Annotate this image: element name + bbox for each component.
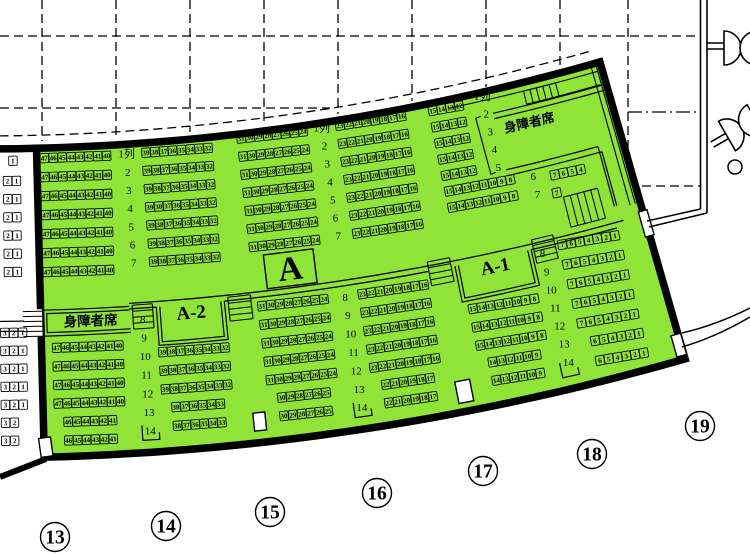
svg-text:47: 47 <box>55 400 63 408</box>
svg-text:25: 25 <box>299 201 307 210</box>
svg-text:3: 3 <box>488 126 494 138</box>
svg-text:26: 26 <box>283 148 291 157</box>
svg-text:40: 40 <box>117 398 125 406</box>
svg-text:36: 36 <box>169 147 177 156</box>
svg-text:26: 26 <box>286 166 294 175</box>
svg-text:29: 29 <box>259 169 267 178</box>
svg-text:31: 31 <box>262 339 270 348</box>
svg-text:26: 26 <box>307 334 315 343</box>
svg-text:47: 47 <box>41 173 49 181</box>
svg-text:45: 45 <box>71 343 79 351</box>
svg-text:26: 26 <box>288 184 296 193</box>
svg-text:40: 40 <box>106 247 114 255</box>
svg-text:2: 2 <box>13 419 17 427</box>
svg-text:35: 35 <box>179 164 187 173</box>
svg-text:2: 2 <box>484 109 490 121</box>
svg-text:37: 37 <box>166 238 174 247</box>
svg-text:34: 34 <box>193 236 201 245</box>
svg-text:37: 37 <box>183 421 191 430</box>
svg-text:9: 9 <box>544 266 550 278</box>
svg-text:33: 33 <box>212 344 220 353</box>
svg-text:40: 40 <box>103 152 111 160</box>
svg-text:26: 26 <box>304 316 312 325</box>
svg-text:26: 26 <box>292 220 300 229</box>
svg-text:41: 41 <box>109 417 117 425</box>
svg-text:40: 40 <box>115 342 123 350</box>
svg-text:41: 41 <box>110 435 118 443</box>
svg-text:37: 37 <box>161 166 169 175</box>
svg-text:36: 36 <box>170 165 178 174</box>
svg-text:39: 39 <box>150 258 158 267</box>
svg-text:35: 35 <box>195 346 203 355</box>
svg-text:31: 31 <box>248 225 256 234</box>
svg-text:28: 28 <box>272 204 280 213</box>
svg-text:33: 33 <box>203 254 211 263</box>
svg-text:30: 30 <box>254 206 262 215</box>
svg-text:34: 34 <box>203 345 211 354</box>
svg-text:46: 46 <box>51 192 59 200</box>
svg-text:38: 38 <box>172 403 180 412</box>
svg-text:26: 26 <box>311 371 319 380</box>
svg-text:42: 42 <box>86 191 94 199</box>
svg-text:12: 12 <box>142 388 153 400</box>
svg-text:24: 24 <box>327 351 335 360</box>
svg-text:10: 10 <box>140 351 152 363</box>
svg-text:31: 31 <box>260 321 268 330</box>
svg-text:A-2: A-2 <box>175 302 206 325</box>
svg-text:46: 46 <box>51 211 59 219</box>
svg-text:38: 38 <box>169 366 177 375</box>
svg-text:27: 27 <box>300 354 308 363</box>
svg-text:43: 43 <box>77 191 85 199</box>
svg-text:11: 11 <box>141 370 152 382</box>
svg-text:41: 41 <box>95 171 103 179</box>
svg-text:41: 41 <box>94 152 102 160</box>
svg-text:24: 24 <box>322 314 330 323</box>
svg-text:42: 42 <box>87 210 95 218</box>
svg-text:25: 25 <box>292 147 300 156</box>
svg-text:44: 44 <box>81 399 89 407</box>
svg-text:44: 44 <box>69 210 77 218</box>
svg-text:40: 40 <box>105 209 113 217</box>
svg-text:A: A <box>276 249 305 289</box>
svg-text:3: 3 <box>4 401 8 409</box>
svg-text:28: 28 <box>296 392 304 401</box>
svg-text:28: 28 <box>291 355 299 364</box>
svg-text:25: 25 <box>313 315 321 324</box>
svg-text:30: 30 <box>273 357 281 366</box>
svg-text:26: 26 <box>294 238 302 247</box>
svg-text:11: 11 <box>348 347 359 359</box>
svg-text:38: 38 <box>155 203 163 212</box>
svg-text:28: 28 <box>264 131 272 140</box>
svg-text:29: 29 <box>287 393 295 402</box>
svg-text:29: 29 <box>261 187 269 196</box>
svg-text:27: 27 <box>277 167 285 176</box>
svg-text:24: 24 <box>329 369 337 378</box>
svg-text:26: 26 <box>313 390 321 399</box>
svg-text:28: 28 <box>268 168 276 177</box>
svg-text:3: 3 <box>4 419 8 427</box>
svg-text:25: 25 <box>303 237 311 246</box>
svg-text:43: 43 <box>91 417 99 425</box>
svg-text:2: 2 <box>13 437 17 445</box>
svg-text:19: 19 <box>690 417 710 438</box>
svg-text:8: 8 <box>540 248 546 260</box>
svg-text:46: 46 <box>63 381 71 389</box>
svg-text:1: 1 <box>21 365 25 373</box>
svg-text:41: 41 <box>96 209 104 217</box>
svg-text:36: 36 <box>188 383 196 392</box>
svg-text:45: 45 <box>61 249 69 257</box>
svg-text:29: 29 <box>284 374 292 383</box>
svg-text:28: 28 <box>270 186 278 195</box>
svg-text:4: 4 <box>492 144 498 156</box>
svg-text:15: 15 <box>260 503 280 524</box>
svg-text:38: 38 <box>174 422 182 431</box>
svg-text:36: 36 <box>191 421 199 430</box>
svg-text:40: 40 <box>116 360 124 368</box>
svg-text:35: 35 <box>197 383 205 392</box>
svg-text:13: 13 <box>354 384 366 396</box>
svg-text:29: 29 <box>278 319 286 328</box>
svg-text:9: 9 <box>345 310 351 322</box>
svg-text:25: 25 <box>320 370 328 379</box>
svg-text:45: 45 <box>60 230 68 238</box>
svg-text:46: 46 <box>50 173 58 181</box>
svg-text:38: 38 <box>151 148 159 157</box>
svg-text:1: 1 <box>15 214 19 222</box>
svg-text:3: 3 <box>3 329 7 337</box>
svg-text:36: 36 <box>174 219 182 228</box>
svg-text:1: 1 <box>16 268 20 276</box>
svg-text:43: 43 <box>89 361 97 369</box>
svg-text:44: 44 <box>70 248 78 256</box>
svg-text:2: 2 <box>6 196 10 204</box>
svg-text:29: 29 <box>289 411 297 420</box>
svg-text:43: 43 <box>78 210 86 218</box>
svg-text:36: 36 <box>171 183 179 192</box>
svg-text:7: 7 <box>131 258 137 270</box>
svg-text:39: 39 <box>147 221 155 230</box>
svg-text:45: 45 <box>59 173 67 181</box>
svg-text:25: 25 <box>294 165 302 174</box>
svg-text:40: 40 <box>105 228 113 236</box>
svg-text:34: 34 <box>206 382 214 391</box>
svg-text:45: 45 <box>61 268 69 276</box>
svg-text:47: 47 <box>54 381 62 389</box>
svg-text:27: 27 <box>294 298 302 307</box>
svg-text:35: 35 <box>196 364 204 373</box>
svg-text:38: 38 <box>152 166 160 175</box>
svg-text:27: 27 <box>283 221 291 230</box>
svg-text:43: 43 <box>79 267 87 275</box>
svg-text:42: 42 <box>85 153 93 161</box>
svg-text:25: 25 <box>322 389 330 398</box>
svg-text:37: 37 <box>177 347 185 356</box>
svg-text:2: 2 <box>13 401 17 409</box>
svg-text:14: 14 <box>356 402 368 414</box>
svg-text:13: 13 <box>45 528 65 549</box>
svg-text:36: 36 <box>190 402 198 411</box>
svg-text:39: 39 <box>142 149 150 158</box>
svg-text:28: 28 <box>289 336 297 345</box>
svg-text:41: 41 <box>108 398 116 406</box>
svg-text:33: 33 <box>195 145 203 154</box>
svg-text:10: 10 <box>546 284 558 296</box>
svg-text:7: 7 <box>336 230 342 242</box>
svg-text:3: 3 <box>126 185 132 197</box>
svg-text:34: 34 <box>205 364 213 373</box>
svg-text:6: 6 <box>333 212 339 224</box>
svg-text:38: 38 <box>158 239 166 248</box>
svg-text:32: 32 <box>207 181 215 190</box>
svg-text:46: 46 <box>62 344 70 352</box>
svg-text:10: 10 <box>345 329 357 341</box>
svg-text:35: 35 <box>186 255 194 264</box>
svg-text:34: 34 <box>187 146 195 155</box>
svg-text:30: 30 <box>248 152 256 161</box>
svg-text:36: 36 <box>186 346 194 355</box>
svg-text:44: 44 <box>70 267 78 275</box>
svg-text:41: 41 <box>107 361 115 369</box>
svg-text:47: 47 <box>43 249 51 257</box>
svg-text:40: 40 <box>104 190 112 198</box>
svg-text:4: 4 <box>327 176 333 188</box>
svg-text:25: 25 <box>324 407 332 416</box>
svg-text:26: 26 <box>309 353 317 362</box>
svg-text:33: 33 <box>214 363 222 372</box>
svg-text:44: 44 <box>82 418 90 426</box>
svg-text:42: 42 <box>88 248 96 256</box>
svg-text:40: 40 <box>104 171 112 179</box>
svg-text:32: 32 <box>211 235 219 244</box>
svg-text:43: 43 <box>76 153 84 161</box>
svg-text:1: 1 <box>11 157 15 165</box>
svg-text:14: 14 <box>145 425 157 437</box>
svg-text:26: 26 <box>302 297 310 306</box>
svg-text:30: 30 <box>252 188 260 197</box>
svg-text:42: 42 <box>87 229 95 237</box>
svg-text:5: 5 <box>330 194 336 206</box>
svg-text:27: 27 <box>298 335 306 344</box>
svg-text:46: 46 <box>64 418 72 426</box>
svg-text:30: 30 <box>258 242 266 251</box>
svg-text:43: 43 <box>79 248 87 256</box>
svg-text:42: 42 <box>97 342 105 350</box>
svg-text:45: 45 <box>72 399 80 407</box>
svg-text:1: 1 <box>21 401 25 409</box>
svg-text:32: 32 <box>212 253 220 262</box>
svg-text:32: 32 <box>223 362 231 371</box>
svg-text:38: 38 <box>159 257 167 266</box>
svg-text:26: 26 <box>290 202 298 211</box>
svg-text:41: 41 <box>97 266 105 274</box>
svg-text:43: 43 <box>78 229 86 237</box>
svg-text:39: 39 <box>162 385 170 394</box>
svg-text:47: 47 <box>42 192 50 200</box>
svg-text:27: 27 <box>275 149 283 158</box>
svg-text:29: 29 <box>263 205 271 214</box>
svg-text:46: 46 <box>50 154 58 162</box>
svg-text:43: 43 <box>90 399 98 407</box>
svg-text:30: 30 <box>246 133 254 142</box>
svg-text:28: 28 <box>285 299 293 308</box>
svg-text:29: 29 <box>276 300 284 309</box>
svg-text:25: 25 <box>290 129 298 138</box>
svg-text:29: 29 <box>257 151 265 160</box>
svg-text:18: 18 <box>582 445 602 466</box>
svg-text:32: 32 <box>204 144 212 153</box>
svg-text:25: 25 <box>318 352 326 361</box>
svg-text:47: 47 <box>43 230 51 238</box>
svg-text:31: 31 <box>239 153 247 162</box>
svg-text:45: 45 <box>74 436 82 444</box>
svg-text:35: 35 <box>180 182 188 191</box>
svg-text:46: 46 <box>53 268 61 276</box>
svg-text:24: 24 <box>305 182 313 191</box>
svg-text:44: 44 <box>83 436 91 444</box>
svg-text:37: 37 <box>181 403 189 412</box>
svg-text:45: 45 <box>72 381 80 389</box>
svg-text:2: 2 <box>125 167 131 179</box>
svg-text:32: 32 <box>208 199 216 208</box>
svg-text:40: 40 <box>106 266 114 274</box>
svg-text:2: 2 <box>7 268 11 276</box>
svg-text:45: 45 <box>59 192 67 200</box>
svg-text:28: 28 <box>274 222 282 231</box>
svg-text:31: 31 <box>265 358 273 367</box>
svg-text:34: 34 <box>208 401 216 410</box>
svg-text:9: 9 <box>141 333 147 345</box>
svg-text:45: 45 <box>58 154 66 162</box>
svg-text:4: 4 <box>127 203 133 215</box>
svg-text:42: 42 <box>99 398 107 406</box>
svg-text:28: 28 <box>276 240 284 249</box>
svg-text:33: 33 <box>201 217 209 226</box>
svg-text:2: 2 <box>6 214 10 222</box>
svg-text:27: 27 <box>281 203 289 212</box>
svg-text:31: 31 <box>267 376 275 385</box>
svg-text:34: 34 <box>189 182 197 191</box>
svg-text:34: 34 <box>192 218 200 227</box>
svg-text:13: 13 <box>144 407 156 419</box>
svg-text:45: 45 <box>60 211 68 219</box>
svg-text:30: 30 <box>271 338 279 347</box>
svg-text:1: 1 <box>15 232 19 240</box>
svg-text:42: 42 <box>88 267 96 275</box>
svg-text:27: 27 <box>307 409 315 418</box>
svg-text:3: 3 <box>3 347 7 355</box>
svg-text:31: 31 <box>243 189 251 198</box>
svg-text:25: 25 <box>297 183 305 192</box>
svg-text:2: 2 <box>6 250 10 258</box>
svg-text:33: 33 <box>215 381 223 390</box>
svg-text:27: 27 <box>273 130 281 139</box>
svg-text:35: 35 <box>200 420 208 429</box>
svg-text:24: 24 <box>299 128 307 137</box>
svg-text:44: 44 <box>80 343 88 351</box>
svg-text:32: 32 <box>210 217 218 226</box>
svg-text:14: 14 <box>156 517 176 538</box>
svg-text:36: 36 <box>175 238 183 247</box>
svg-text:34: 34 <box>190 200 198 209</box>
svg-text:36: 36 <box>187 365 195 374</box>
svg-text:39: 39 <box>159 348 167 357</box>
svg-text:47: 47 <box>41 154 49 162</box>
svg-text:41: 41 <box>96 228 104 236</box>
svg-text:1列: 1列 <box>474 89 491 103</box>
svg-text:3: 3 <box>324 158 330 170</box>
svg-text:44: 44 <box>69 229 77 237</box>
svg-text:12: 12 <box>351 365 362 377</box>
svg-text:32: 32 <box>224 381 232 390</box>
svg-text:27: 27 <box>296 317 304 326</box>
svg-text:34: 34 <box>188 164 196 173</box>
svg-text:11: 11 <box>550 303 561 315</box>
svg-text:31: 31 <box>237 134 245 143</box>
svg-text:30: 30 <box>278 394 286 403</box>
svg-text:3: 3 <box>3 365 7 373</box>
svg-text:43: 43 <box>89 343 97 351</box>
svg-text:3: 3 <box>4 383 8 391</box>
svg-text:31: 31 <box>258 302 266 311</box>
svg-text:28: 28 <box>293 373 301 382</box>
svg-text:29: 29 <box>267 241 275 250</box>
svg-text:33: 33 <box>199 199 207 208</box>
svg-text:46: 46 <box>65 437 73 445</box>
svg-text:47: 47 <box>53 344 61 352</box>
svg-text:42: 42 <box>100 417 108 425</box>
svg-text:35: 35 <box>183 219 191 228</box>
svg-text:41: 41 <box>95 190 103 198</box>
svg-text:2: 2 <box>12 329 16 337</box>
svg-text:45: 45 <box>71 362 79 370</box>
svg-text:5: 5 <box>129 221 135 233</box>
svg-text:28: 28 <box>298 410 306 419</box>
svg-text:42: 42 <box>98 361 106 369</box>
svg-text:45: 45 <box>73 418 81 426</box>
svg-text:7: 7 <box>535 189 541 201</box>
svg-text:2: 2 <box>12 347 16 355</box>
svg-text:35: 35 <box>182 201 190 210</box>
svg-text:44: 44 <box>68 191 76 199</box>
svg-text:1: 1 <box>21 329 25 337</box>
svg-text:38: 38 <box>168 348 176 357</box>
svg-text:44: 44 <box>80 362 88 370</box>
svg-text:37: 37 <box>168 256 176 265</box>
svg-text:24: 24 <box>320 295 328 304</box>
svg-text:16: 16 <box>367 484 387 505</box>
svg-text:29: 29 <box>255 132 263 141</box>
svg-text:8: 8 <box>342 292 348 304</box>
svg-text:38: 38 <box>171 385 179 394</box>
svg-text:41: 41 <box>108 379 116 387</box>
svg-text:14: 14 <box>563 357 575 369</box>
svg-text:29: 29 <box>282 356 290 365</box>
svg-text:41: 41 <box>106 342 114 350</box>
svg-text:37: 37 <box>179 384 187 393</box>
svg-text:30: 30 <box>267 301 275 310</box>
svg-text:27: 27 <box>279 185 287 194</box>
svg-text:36: 36 <box>173 201 181 210</box>
svg-text:46: 46 <box>63 400 71 408</box>
svg-text:25: 25 <box>316 333 324 342</box>
svg-text:29: 29 <box>280 337 288 346</box>
svg-text:25: 25 <box>311 296 319 305</box>
svg-text:24: 24 <box>312 236 320 245</box>
svg-text:47: 47 <box>44 268 52 276</box>
